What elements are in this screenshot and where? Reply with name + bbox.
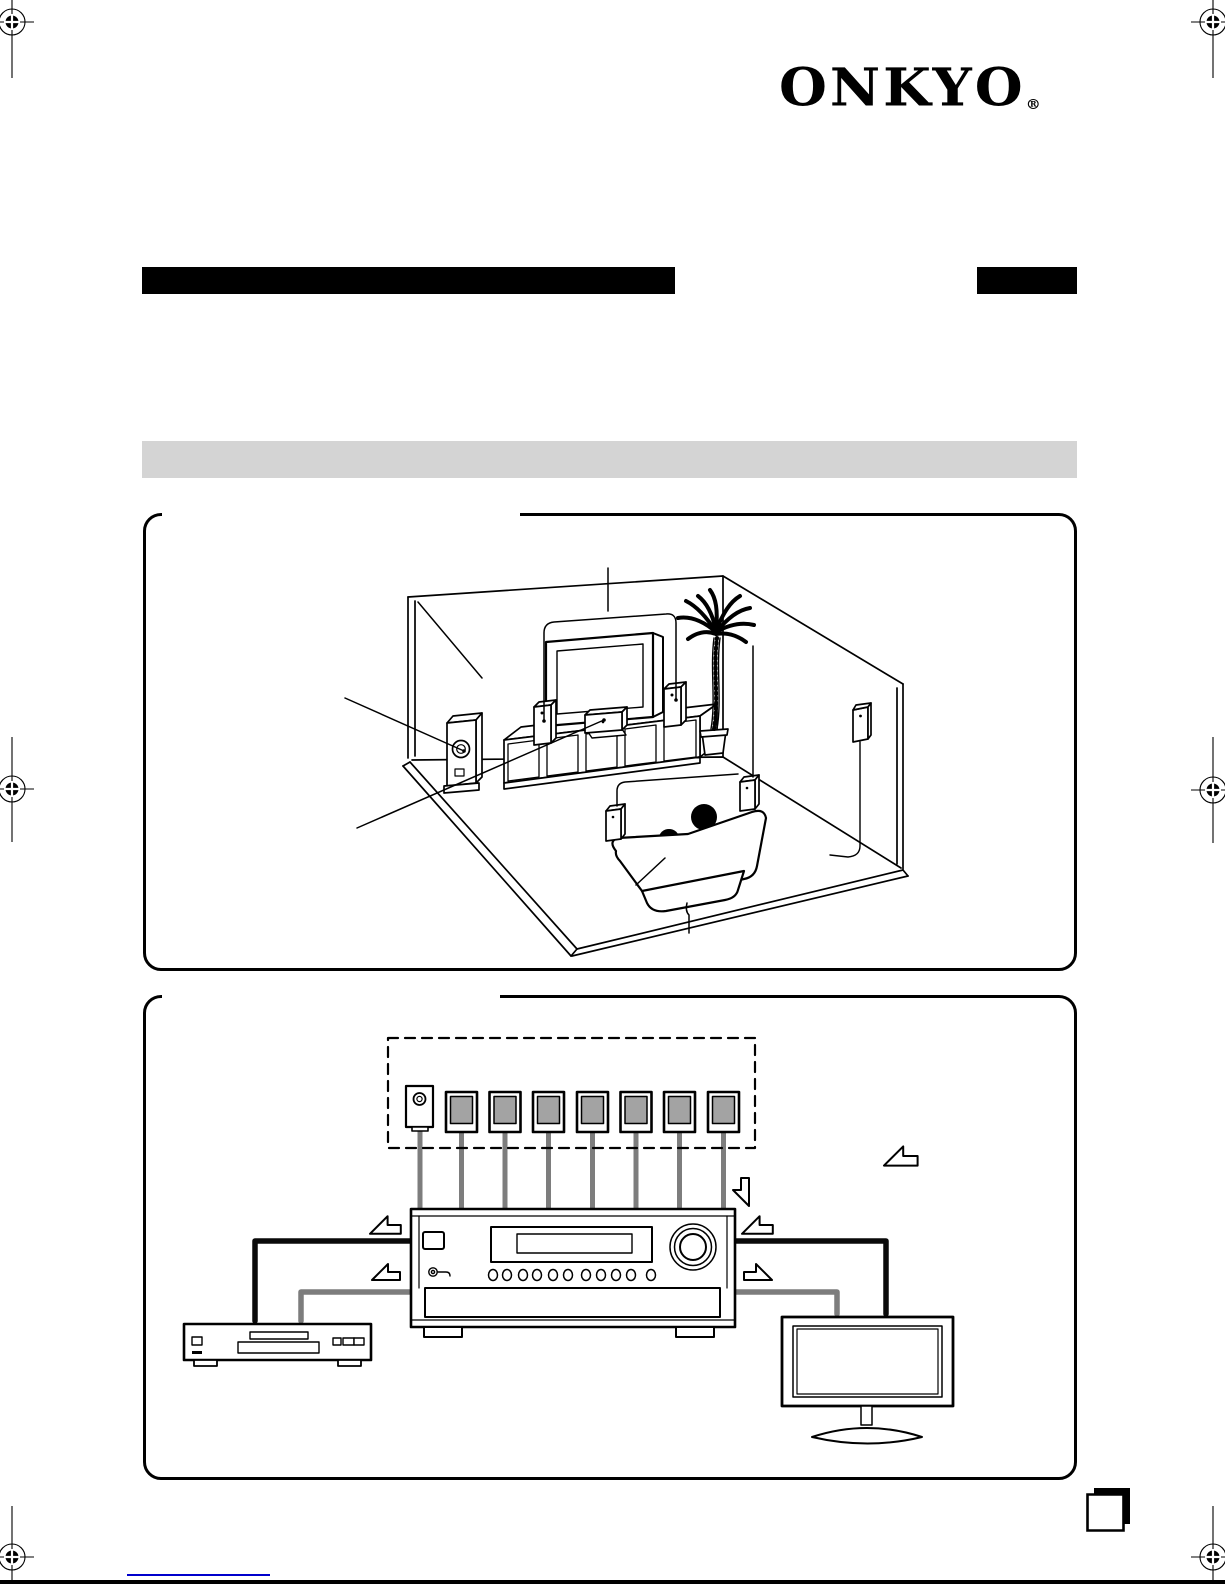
speaker-icon — [708, 1092, 739, 1132]
wiring-diagram-panel — [143, 995, 1077, 1480]
center-speaker-icon — [585, 707, 627, 733]
brand-logo: ONKYO® — [779, 56, 1041, 118]
video-cable-gray-right — [735, 1292, 837, 1314]
registration-mark-icon — [1191, 1506, 1225, 1580]
room-illustration — [143, 513, 1071, 965]
footer-link-underline[interactable] — [127, 1574, 270, 1576]
title-bar-redacted — [142, 267, 675, 294]
section-heading-bar — [142, 441, 1077, 478]
dvd-disc-tray — [238, 1342, 319, 1353]
brand-logo-text: ONKYO — [779, 56, 1026, 118]
registration-mark-icon — [0, 0, 34, 78]
page-ref-arrow-icon — [884, 1146, 918, 1165]
registration-mark-icon — [1191, 0, 1225, 78]
registration-mark-icon — [0, 1506, 34, 1580]
manual-page: ONKYO® — [0, 0, 1225, 1585]
registration-mark-icon — [1191, 737, 1225, 843]
speaker-wires — [420, 1129, 724, 1209]
page-ref-arrow-icon — [742, 1216, 773, 1234]
page-corner-marker — [1086, 1488, 1130, 1532]
tv-stand-base — [812, 1428, 922, 1444]
surround-right-speaker-icon — [740, 775, 759, 811]
receiver-volume-knob — [670, 1224, 716, 1270]
front-right-speaker-icon — [664, 682, 686, 727]
edition-box — [977, 267, 1077, 294]
tv-monitor-icon — [782, 1317, 953, 1444]
wiring-subwoofer-icon — [406, 1086, 433, 1131]
registered-trademark-icon: ® — [1026, 96, 1041, 113]
registration-mark-icon — [0, 737, 34, 842]
speaker-placement-panel — [143, 513, 1077, 971]
speaker-icon — [446, 1092, 477, 1132]
receiver-power-button — [423, 1232, 444, 1249]
speaker-icon — [664, 1092, 695, 1132]
dvd-player-icon — [184, 1324, 371, 1366]
tv-stand-neck — [861, 1406, 872, 1425]
wall-speaker-icon — [830, 703, 871, 857]
page-ref-arrow-icon — [372, 1264, 400, 1280]
sofa-icon — [612, 811, 766, 911]
front-left-speaker-icon — [534, 700, 556, 745]
speaker-icon — [490, 1092, 521, 1132]
surround-left-speaker-icon — [606, 804, 625, 841]
page-ref-arrow-icon — [370, 1216, 401, 1234]
speaker-set-dashed-box — [388, 1038, 755, 1148]
video-cable-gray-left — [301, 1292, 411, 1321]
page-ref-arrow-icon — [744, 1264, 772, 1280]
speaker-icon — [577, 1092, 608, 1132]
wiring-illustration — [143, 995, 1071, 1474]
av-receiver-icon — [411, 1209, 735, 1337]
page-ref-arrow-icon — [733, 1178, 749, 1206]
speaker-icon — [621, 1092, 652, 1132]
page-bottom-rule — [0, 1580, 1225, 1584]
speaker-icon — [533, 1092, 564, 1132]
wiring-speaker-icons — [446, 1092, 739, 1132]
dvd-display — [250, 1332, 308, 1339]
